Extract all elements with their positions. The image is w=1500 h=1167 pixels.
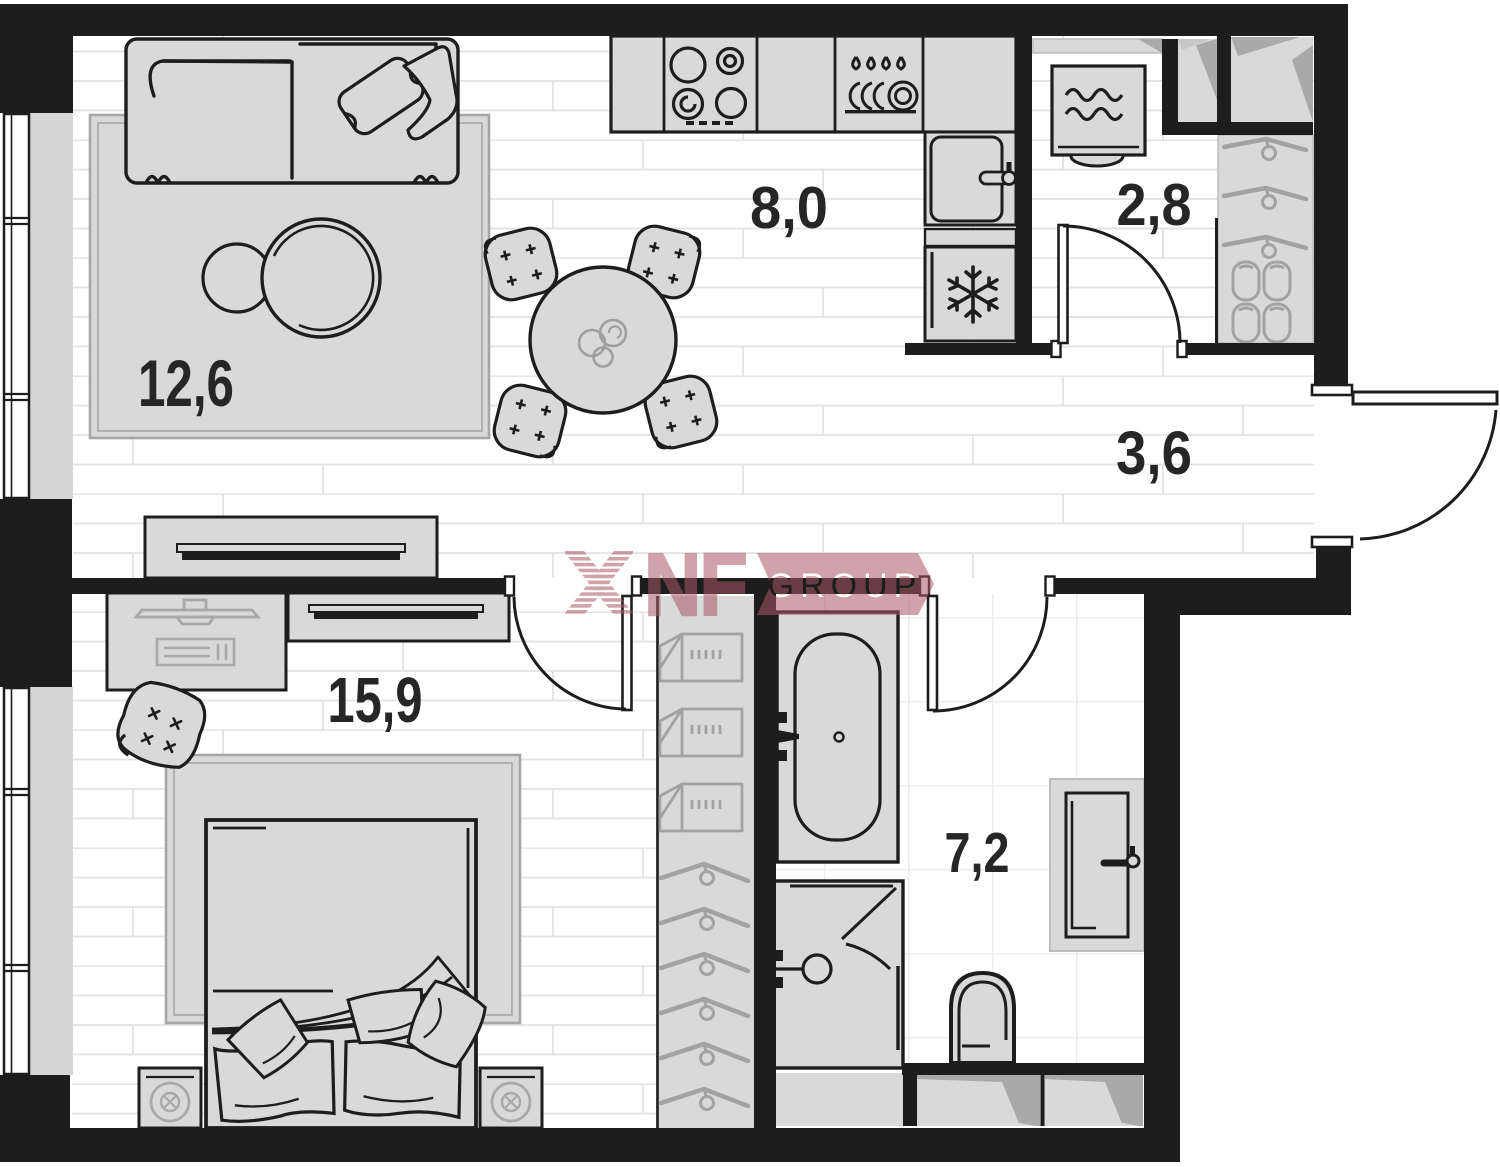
svg-text:8,0: 8,0 <box>750 175 828 241</box>
svg-text:3,6: 3,6 <box>1116 419 1192 487</box>
svg-text:2,8: 2,8 <box>1117 172 1192 238</box>
svg-text:15,9: 15,9 <box>328 664 423 736</box>
svg-text:7,2: 7,2 <box>945 821 1010 885</box>
svg-text:NF: NF <box>644 535 746 634</box>
svg-text:12,6: 12,6 <box>138 346 234 420</box>
